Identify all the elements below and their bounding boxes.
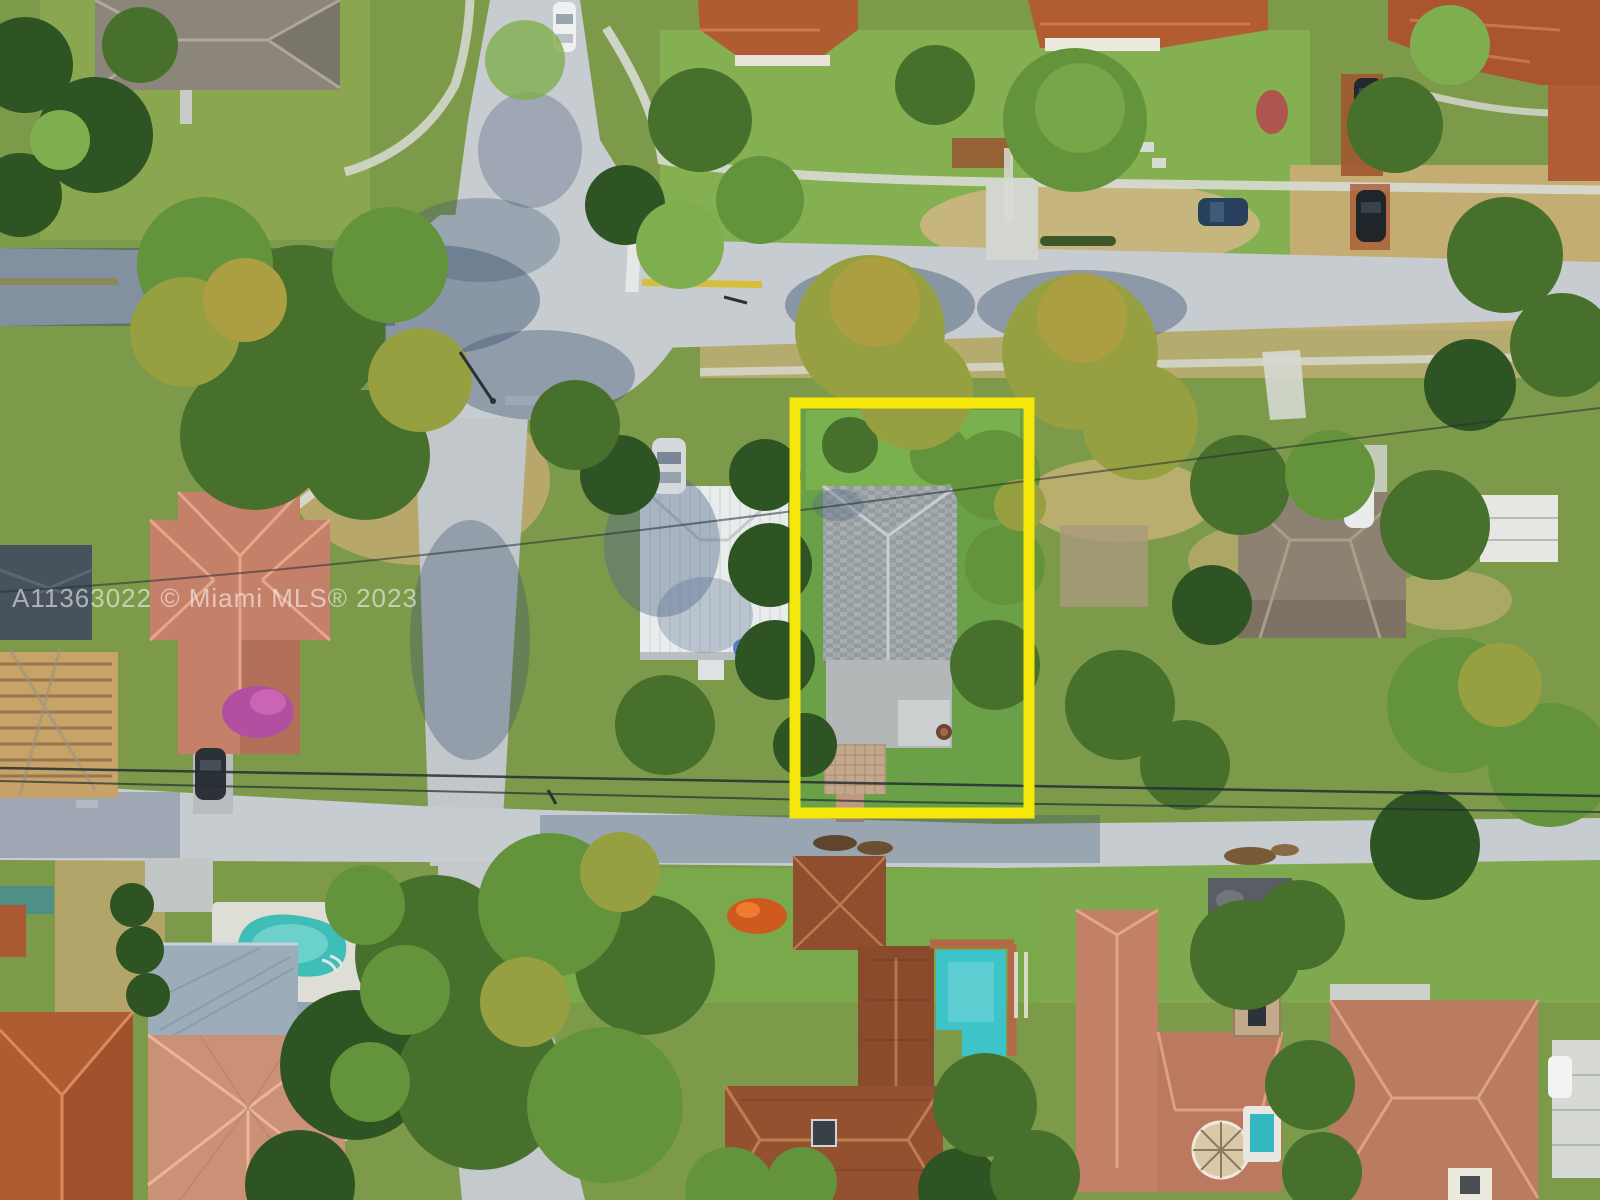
skylight [812,1120,836,1146]
hedge-row [1040,236,1116,246]
driveway-pool-house [145,858,213,912]
red-flowers [1256,90,1288,134]
dry-patch-mid3 [1388,570,1512,630]
spa [1250,1114,1274,1152]
road-debris-2 [857,841,893,855]
dark-car-left [195,748,226,800]
aerial-photo: A11363022 © Miami MLS® 2023 [0,0,1600,1200]
path-vertical [1004,148,1013,222]
small-white-building [1480,495,1558,562]
mls-watermark: A11363022 © Miami MLS® 2023 [12,583,418,613]
tan-roof-partial [1060,525,1148,607]
right-edge-building [1548,1040,1600,1178]
road-debris-3 [1224,847,1276,865]
white-car-right-edge [1548,1056,1572,1098]
road-debris-1 [813,835,857,851]
paver-3 [1152,158,1166,168]
aerial-photo-canvas: A11363022 © Miami MLS® 2023 [0,0,1600,1200]
mulch-bed [952,138,1010,168]
blue-car-right [1198,198,1248,226]
road-debris-4 [1271,844,1299,856]
black-car-right-2 [1356,190,1386,242]
orange-flowers [727,898,787,934]
